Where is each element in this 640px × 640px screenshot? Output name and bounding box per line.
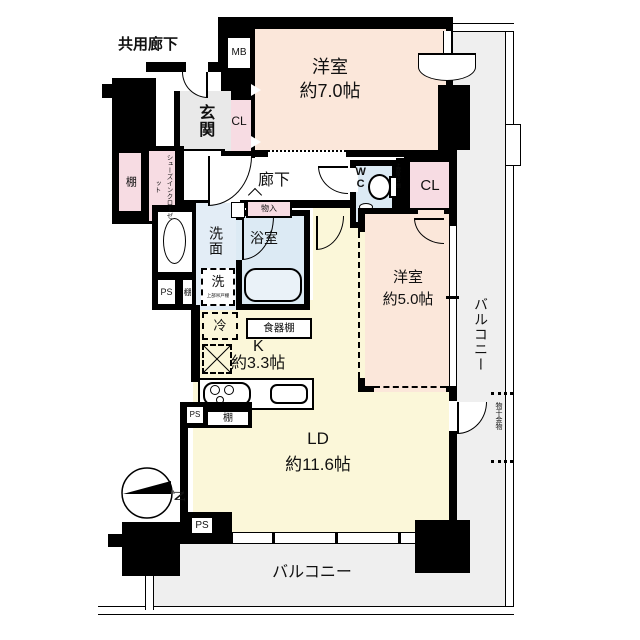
drying-fixture-dots-bottom	[491, 460, 513, 463]
kitchen-name-label: K	[253, 338, 264, 356]
balcony-partition-notch	[505, 124, 521, 166]
ld-window-tick-2	[335, 532, 338, 544]
wall-entrance-left	[174, 91, 180, 152]
west5-door-gap	[418, 210, 444, 218]
washroom-label: 洗面	[206, 218, 226, 264]
wc-door-arc	[318, 166, 348, 194]
balcony-bottom-label: バルコニー	[252, 562, 372, 584]
kitchen-size-label: 約3.3帖	[231, 355, 285, 373]
fridge-label: 冷	[202, 316, 238, 336]
closet-west5-label: CL	[410, 174, 450, 198]
entrance-step-line	[179, 149, 225, 151]
ps-washroom-label: PS	[156, 285, 177, 299]
shelf-kitchen-label: 棚	[206, 411, 250, 426]
oval-fixture	[163, 218, 186, 264]
west7-cl-mark-1	[251, 84, 261, 96]
toilet-bowl	[368, 174, 391, 200]
bathtub	[244, 268, 302, 302]
balcony-railing-bottom	[98, 606, 514, 615]
column-bottom-left-stub	[108, 534, 122, 547]
corridor-storage-label: 物入	[248, 202, 290, 216]
west7-dotted-opening	[268, 150, 346, 157]
ps-kitchen-label: PS	[186, 408, 204, 422]
wall-west5-topright	[449, 150, 457, 226]
washer-label: 洗	[204, 272, 232, 292]
wc-shelf-note-label: 上部吊戸棚	[394, 163, 400, 188]
pantry-x-icon	[204, 346, 230, 372]
west5-sliding-left	[358, 232, 365, 378]
wall-entrance-top-left	[146, 62, 186, 72]
ld-size-label: 約11.6帖	[258, 454, 378, 476]
genkan-corridor-door-arc	[208, 156, 252, 206]
stove-burner-2	[224, 385, 234, 395]
shared-corridor-label: 共用廊下	[118, 36, 178, 53]
west7-balcony-door-arc	[418, 53, 476, 81]
compass-icon	[120, 466, 174, 520]
compass	[120, 466, 174, 520]
west7-balcony-door-gap	[443, 31, 452, 53]
ps-bottom-label: PS	[190, 517, 214, 534]
entrance-shelf-label: 棚	[121, 162, 139, 202]
wall-k-left	[191, 305, 200, 382]
wall-corridor-bottom-c	[292, 200, 354, 208]
bathroom-label: 浴室	[250, 230, 278, 246]
column-bottom-right	[415, 520, 470, 573]
column-top-left-stub	[102, 84, 114, 98]
washer-note-label: 上部吊戸棚	[202, 292, 234, 300]
ld-name-label: LD	[278, 428, 358, 450]
corridor-label: 廊下	[258, 172, 290, 190]
balcony-right-label: バルコニー	[471, 284, 491, 384]
ld-window-tick-3	[398, 532, 401, 544]
stove-burner-1	[210, 385, 220, 395]
ld-balcony-door-gap	[449, 400, 457, 432]
column-top-right	[438, 85, 470, 150]
west7-size-label: 約7.0帖	[270, 80, 390, 102]
wall-mb-left-join	[218, 29, 224, 72]
drying-fixture-dots-top	[491, 392, 513, 395]
balcony-railing-right	[505, 23, 514, 615]
west5-size-label: 約5.0帖	[368, 290, 448, 310]
west7-name-label: 洋室	[270, 56, 390, 78]
entrance-label: 玄関	[193, 98, 215, 144]
west5-window	[449, 226, 457, 386]
west5-sliding-bottom	[374, 386, 446, 392]
ld-window-tick-1	[272, 532, 275, 544]
column-bottom-left	[122, 522, 180, 576]
drying-fixture-label: 物干金物	[494, 402, 502, 430]
shoe-closet-label: シューズインクローゼット	[149, 152, 175, 220]
floor-plan: N 共用廊下 MB 玄関 棚 シューズインクローゼット CL 洋室 約7.0帖 …	[0, 0, 640, 640]
closet-west7-label: CL	[226, 112, 252, 132]
wc-label: WC	[354, 166, 367, 190]
west7-cl-mark-2	[251, 136, 261, 148]
ld-window	[233, 532, 415, 544]
balcony-railing-top	[450, 23, 514, 32]
cupboard-label: 食器棚	[246, 320, 312, 337]
small-utility-box	[231, 202, 245, 218]
wall-top	[218, 17, 453, 29]
pantry-x-box	[202, 344, 232, 374]
meter-box-label: MB	[226, 36, 252, 70]
kitchen-sink	[270, 384, 308, 404]
column-top-left	[112, 78, 156, 152]
shelf-washroom-label: 棚	[181, 282, 194, 302]
west5-name-label: 洋室	[368, 268, 448, 288]
